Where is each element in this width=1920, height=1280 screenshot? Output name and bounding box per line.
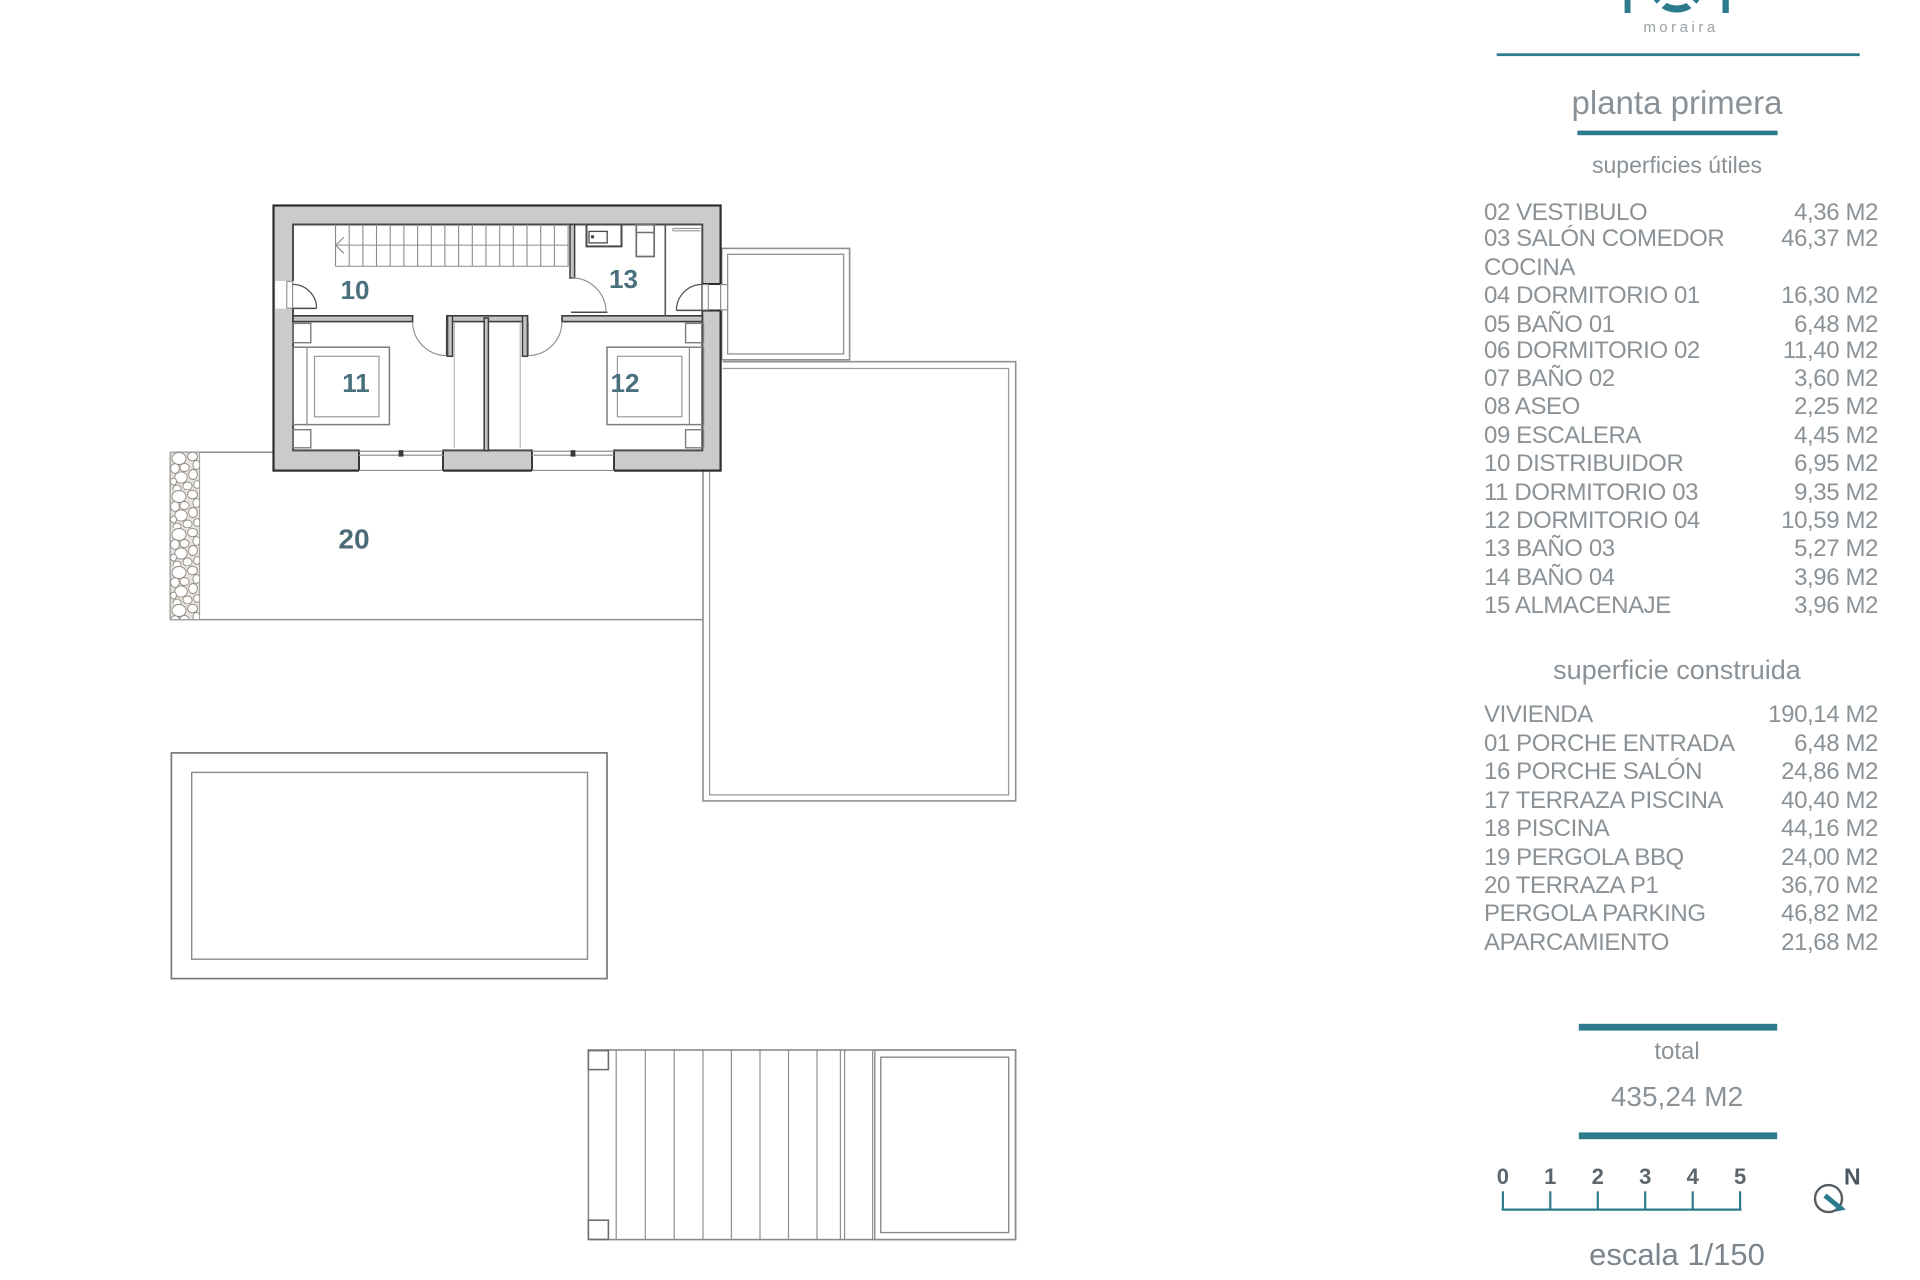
svg-text:11: 11 (342, 368, 370, 398)
svg-text:3: 3 (1639, 1164, 1651, 1189)
svg-text:1: 1 (1544, 1164, 1556, 1189)
svg-text:13: 13 (609, 264, 638, 294)
svg-text:N: N (1844, 1164, 1861, 1190)
svg-text:4: 4 (1687, 1164, 1700, 1189)
svg-text:0: 0 (1497, 1164, 1509, 1189)
svg-text:5: 5 (1734, 1164, 1746, 1189)
svg-text:10: 10 (341, 275, 370, 305)
svg-text:2: 2 (1592, 1164, 1604, 1189)
svg-text:12: 12 (611, 368, 640, 398)
svg-text:20: 20 (338, 524, 369, 555)
